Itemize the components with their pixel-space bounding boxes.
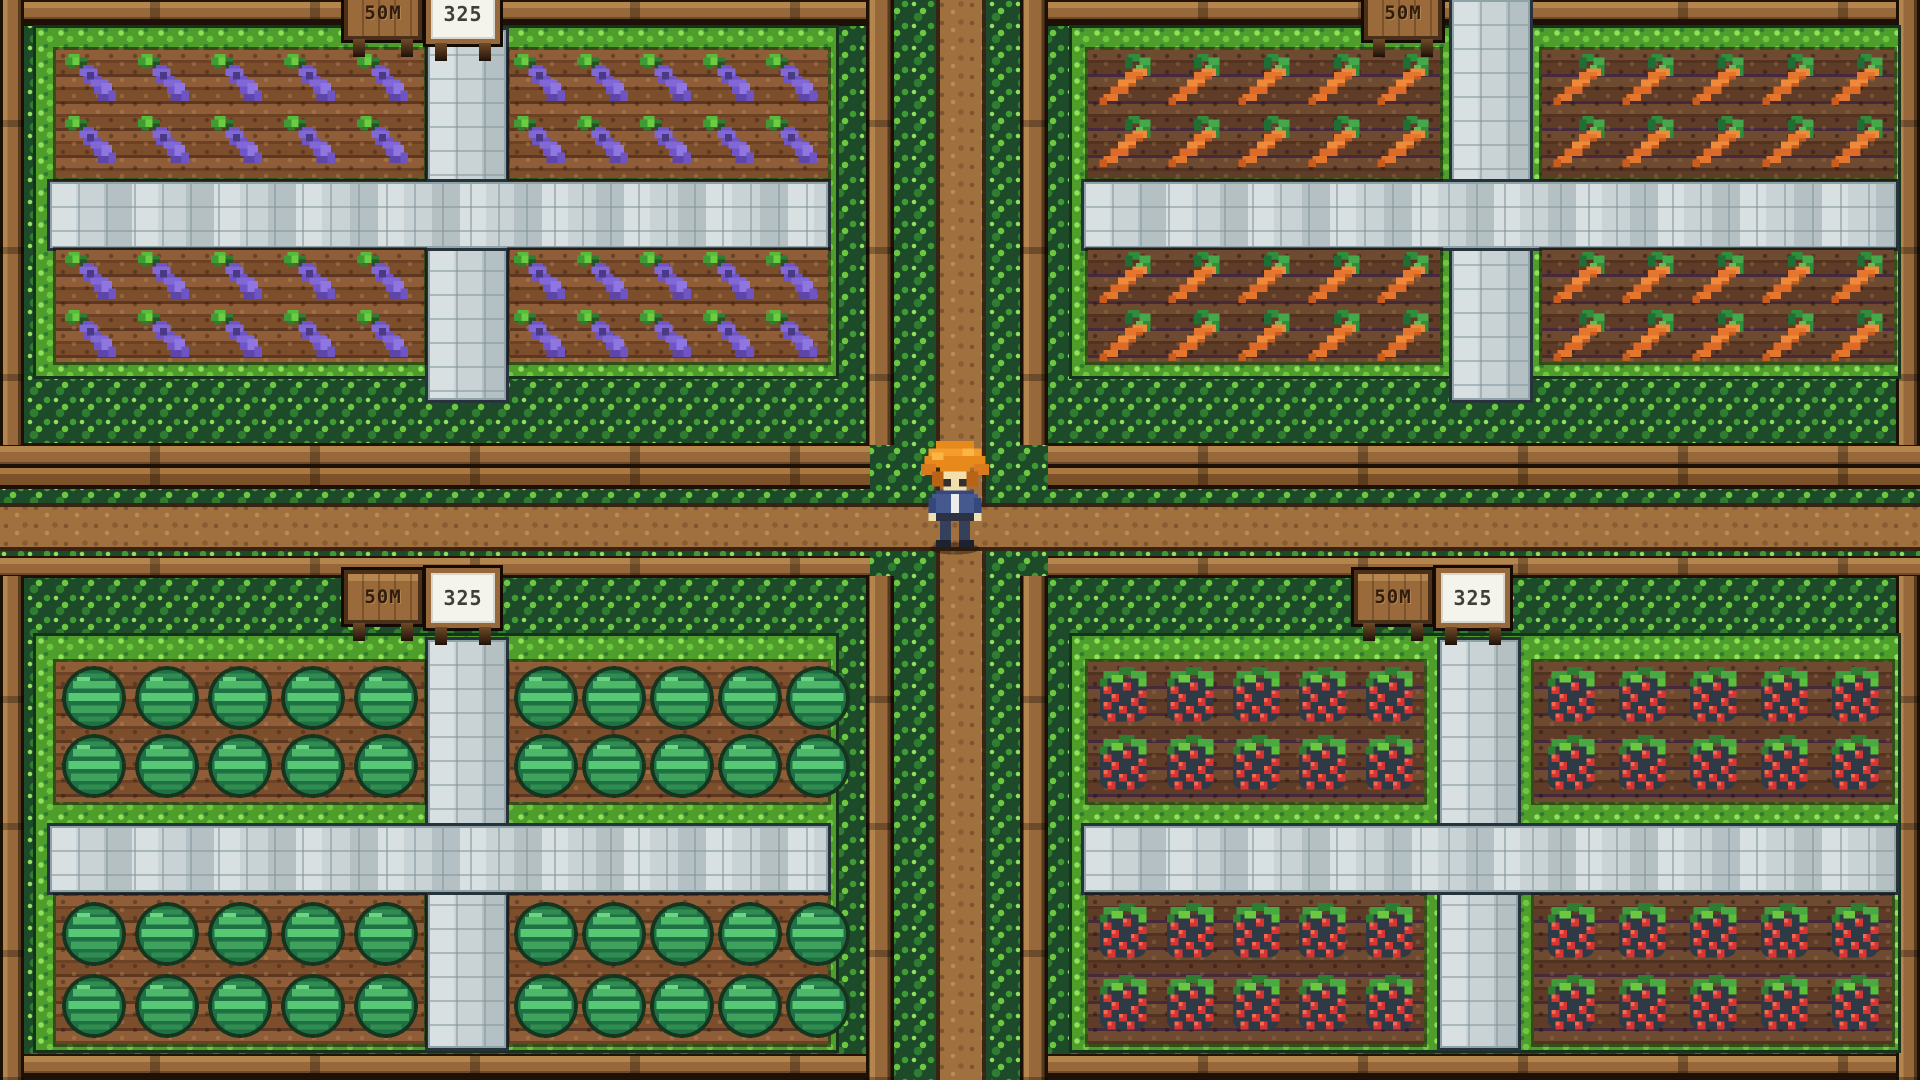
crop-eggplant[interactable] <box>514 310 572 368</box>
crop-carrot[interactable] <box>1550 116 1608 174</box>
crop-grid <box>1536 898 1890 1042</box>
crop-carrot[interactable] <box>1759 310 1817 368</box>
crop-strawberry[interactable] <box>1682 667 1744 729</box>
soil-plot-eggplant <box>510 50 828 178</box>
crop-strawberry[interactable] <box>1092 667 1154 729</box>
crop-strawberry[interactable] <box>1291 735 1353 797</box>
sign-label: 50M <box>1364 0 1442 40</box>
crop-eggplant[interactable] <box>514 116 572 174</box>
crop-strawberry[interactable] <box>1540 975 1602 1037</box>
crop-carrot[interactable] <box>1828 116 1886 174</box>
crop-watermelon[interactable] <box>716 664 784 732</box>
crop-watermelon[interactable] <box>580 664 648 732</box>
crop-price-sign: 325 <box>426 0 500 44</box>
crop-eggplant[interactable] <box>357 54 415 112</box>
crop-eggplant[interactable] <box>284 310 342 368</box>
crop-carrot[interactable] <box>1096 310 1154 368</box>
farm-quadrant-top-left: 50M325 <box>0 0 870 443</box>
crop-eggplant[interactable] <box>640 54 698 112</box>
crop-watermelon[interactable] <box>279 732 347 800</box>
crop-eggplant[interactable] <box>703 116 761 174</box>
crop-watermelon[interactable] <box>206 900 274 968</box>
crop-watermelon[interactable] <box>580 972 648 1040</box>
crop-eggplant[interactable] <box>211 116 269 174</box>
crop-grid <box>512 52 826 176</box>
crop-strawberry[interactable] <box>1753 735 1815 797</box>
crop-watermelon[interactable] <box>716 900 784 968</box>
farmer-sprite <box>917 434 993 562</box>
crop-carrot[interactable] <box>1828 252 1886 310</box>
crop-carrot[interactable] <box>1096 54 1154 112</box>
crop-eggplant[interactable] <box>65 252 123 310</box>
crop-strawberry[interactable] <box>1682 735 1744 797</box>
crop-strawberry[interactable] <box>1824 975 1886 1037</box>
crop-strawberry[interactable] <box>1824 903 1886 965</box>
crop-carrot[interactable] <box>1689 310 1747 368</box>
crop-carrot[interactable] <box>1305 252 1363 310</box>
stone-path-horizontal <box>1084 826 1896 892</box>
sign-leg <box>401 623 413 641</box>
crop-grid <box>1544 252 1892 360</box>
sign-leg <box>479 43 491 61</box>
crop-carrot[interactable] <box>1828 310 1886 368</box>
fence-post <box>1020 0 1048 445</box>
crop-eggplant[interactable] <box>703 252 761 310</box>
crop-eggplant[interactable] <box>284 252 342 310</box>
crop-eggplant[interactable] <box>640 252 698 310</box>
crop-timer-sign: 50M <box>1354 570 1432 624</box>
crop-carrot[interactable] <box>1235 252 1293 310</box>
sign-label: 325 <box>426 568 500 628</box>
player-character[interactable] <box>917 434 993 562</box>
crop-carrot[interactable] <box>1689 252 1747 310</box>
crop-strawberry[interactable] <box>1753 975 1815 1037</box>
crop-strawberry[interactable] <box>1358 667 1420 729</box>
crop-eggplant[interactable] <box>703 54 761 112</box>
crop-price-sign: 325 <box>1436 568 1510 628</box>
crop-eggplant[interactable] <box>284 116 342 174</box>
sign-leg <box>479 627 491 645</box>
sign-leg <box>1373 39 1385 57</box>
crop-strawberry[interactable] <box>1092 735 1154 797</box>
crop-watermelon[interactable] <box>352 732 420 800</box>
crop-eggplant[interactable] <box>211 54 269 112</box>
soil-plot-watermelon <box>56 662 424 802</box>
crop-strawberry[interactable] <box>1824 735 1886 797</box>
crop-strawberry[interactable] <box>1358 735 1420 797</box>
crop-watermelon[interactable] <box>133 732 201 800</box>
crop-strawberry[interactable] <box>1159 735 1221 797</box>
crop-watermelon[interactable] <box>648 732 716 800</box>
sign-leg <box>1489 627 1501 645</box>
crop-grid <box>1090 252 1438 360</box>
crop-strawberry[interactable] <box>1159 975 1221 1037</box>
crop-carrot[interactable] <box>1305 310 1363 368</box>
crop-watermelon[interactable] <box>133 900 201 968</box>
crop-watermelon[interactable] <box>279 664 347 732</box>
crop-strawberry[interactable] <box>1753 667 1815 729</box>
crop-watermelon[interactable] <box>60 732 128 800</box>
crop-strawberry[interactable] <box>1611 667 1673 729</box>
soil-plot-carrot <box>1542 50 1894 178</box>
crop-carrot[interactable] <box>1550 252 1608 310</box>
farm-quadrant-top-right: 50M <box>1048 0 1920 443</box>
crop-carrot[interactable] <box>1165 310 1223 368</box>
crop-eggplant[interactable] <box>357 116 415 174</box>
crop-eggplant[interactable] <box>211 252 269 310</box>
crop-watermelon[interactable] <box>580 732 648 800</box>
crop-eggplant[interactable] <box>211 310 269 368</box>
crop-watermelon[interactable] <box>352 664 420 732</box>
crop-watermelon[interactable] <box>648 900 716 968</box>
soil-plot-watermelon <box>510 896 828 1044</box>
crop-eggplant[interactable] <box>766 116 824 174</box>
crop-eggplant[interactable] <box>577 252 635 310</box>
crop-strawberry[interactable] <box>1358 975 1420 1037</box>
crop-grid <box>1536 664 1890 800</box>
crop-grid <box>58 664 422 800</box>
crop-strawberry[interactable] <box>1682 903 1744 965</box>
crop-eggplant[interactable] <box>577 116 635 174</box>
soil-plot-watermelon <box>510 662 828 802</box>
crop-watermelon[interactable] <box>784 972 852 1040</box>
crop-watermelon[interactable] <box>60 900 128 968</box>
sign-label: 50M <box>1354 570 1432 624</box>
fence-post <box>866 0 894 445</box>
crop-timer-sign: 50M <box>1364 0 1442 40</box>
crop-carrot[interactable] <box>1374 54 1432 112</box>
sign-leg <box>435 43 447 61</box>
crop-price-sign: 325 <box>426 568 500 628</box>
crop-grid <box>512 664 826 800</box>
crop-watermelon[interactable] <box>352 900 420 968</box>
crop-strawberry[interactable] <box>1540 667 1602 729</box>
crop-eggplant[interactable] <box>514 54 572 112</box>
farm-quadrant-bottom-left: 50M325 <box>0 578 870 1080</box>
soil-plot-carrot <box>1088 50 1440 178</box>
sign-leg <box>401 39 413 57</box>
crop-strawberry[interactable] <box>1540 735 1602 797</box>
fence-post <box>1020 576 1048 1080</box>
crop-carrot[interactable] <box>1689 116 1747 174</box>
crop-carrot[interactable] <box>1374 252 1432 310</box>
crop-watermelon[interactable] <box>133 664 201 732</box>
sign-label: 325 <box>1436 568 1510 628</box>
crop-watermelon[interactable] <box>716 732 784 800</box>
crop-timer-sign: 50M <box>344 0 422 40</box>
crop-grid <box>58 252 422 360</box>
crop-carrot[interactable] <box>1759 252 1817 310</box>
crop-watermelon[interactable] <box>784 732 852 800</box>
crop-carrot[interactable] <box>1374 116 1432 174</box>
crop-eggplant[interactable] <box>514 252 572 310</box>
crop-watermelon[interactable] <box>716 972 784 1040</box>
crop-eggplant[interactable] <box>640 310 698 368</box>
crop-eggplant[interactable] <box>640 116 698 174</box>
crop-grid <box>1090 664 1422 800</box>
crop-eggplant[interactable] <box>577 54 635 112</box>
sign-leg <box>1421 39 1433 57</box>
soil-plot-strawberry <box>1088 896 1424 1044</box>
crop-strawberry[interactable] <box>1225 975 1287 1037</box>
stone-path-horizontal <box>50 826 828 892</box>
crop-carrot[interactable] <box>1305 116 1363 174</box>
crop-carrot[interactable] <box>1550 54 1608 112</box>
crop-carrot[interactable] <box>1374 310 1432 368</box>
crop-strawberry[interactable] <box>1611 975 1673 1037</box>
sign-leg <box>1411 623 1423 641</box>
crop-strawberry[interactable] <box>1611 735 1673 797</box>
crop-eggplant[interactable] <box>138 252 196 310</box>
soil-plot-carrot <box>1542 250 1894 362</box>
crop-carrot[interactable] <box>1828 54 1886 112</box>
soil-plot-eggplant <box>56 250 424 362</box>
sign-leg <box>353 39 365 57</box>
crop-watermelon[interactable] <box>279 900 347 968</box>
crop-watermelon[interactable] <box>784 900 852 968</box>
crop-watermelon[interactable] <box>206 732 274 800</box>
crop-grid <box>1090 52 1438 176</box>
crop-eggplant[interactable] <box>65 310 123 368</box>
crop-eggplant[interactable] <box>65 116 123 174</box>
soil-plot-strawberry <box>1534 662 1892 802</box>
crop-strawberry[interactable] <box>1540 903 1602 965</box>
crop-eggplant[interactable] <box>138 310 196 368</box>
crop-grid <box>512 898 826 1042</box>
sign-leg <box>1363 623 1375 641</box>
crop-watermelon[interactable] <box>133 972 201 1040</box>
crop-watermelon[interactable] <box>648 664 716 732</box>
sign-leg <box>353 623 365 641</box>
crop-eggplant[interactable] <box>577 310 635 368</box>
crop-carrot[interactable] <box>1619 116 1677 174</box>
crop-strawberry[interactable] <box>1291 975 1353 1037</box>
crop-strawberry[interactable] <box>1159 667 1221 729</box>
crop-watermelon[interactable] <box>352 972 420 1040</box>
soil-plot-watermelon <box>56 896 424 1044</box>
crop-carrot[interactable] <box>1305 54 1363 112</box>
crop-carrot[interactable] <box>1165 116 1223 174</box>
crop-watermelon[interactable] <box>206 664 274 732</box>
crop-eggplant[interactable] <box>766 252 824 310</box>
soil-plot-strawberry <box>1534 896 1892 1044</box>
crop-eggplant[interactable] <box>284 54 342 112</box>
crop-watermelon[interactable] <box>279 972 347 1040</box>
crop-strawberry[interactable] <box>1291 667 1353 729</box>
sign-label: 50M <box>344 570 422 624</box>
fence-rail-mid-left <box>0 443 870 489</box>
crop-carrot[interactable] <box>1235 54 1293 112</box>
crop-strawberry[interactable] <box>1611 903 1673 965</box>
crop-carrot[interactable] <box>1759 116 1817 174</box>
crop-carrot[interactable] <box>1619 54 1677 112</box>
crop-carrot[interactable] <box>1619 252 1677 310</box>
crop-strawberry[interactable] <box>1358 903 1420 965</box>
crop-watermelon[interactable] <box>784 664 852 732</box>
crop-strawberry[interactable] <box>1291 903 1353 965</box>
crop-grid <box>58 52 422 176</box>
crop-strawberry[interactable] <box>1824 667 1886 729</box>
crop-strawberry[interactable] <box>1159 903 1221 965</box>
soil-plot-eggplant <box>510 250 828 362</box>
crop-carrot[interactable] <box>1550 310 1608 368</box>
sign-leg <box>435 627 447 645</box>
fence-post <box>866 576 894 1080</box>
crop-grid <box>1090 898 1422 1042</box>
crop-strawberry[interactable] <box>1092 903 1154 965</box>
crop-eggplant[interactable] <box>138 54 196 112</box>
crop-carrot[interactable] <box>1096 116 1154 174</box>
crop-eggplant[interactable] <box>138 116 196 174</box>
soil-plot-eggplant <box>56 50 424 178</box>
crop-grid <box>58 898 422 1042</box>
crop-watermelon[interactable] <box>512 972 580 1040</box>
crop-strawberry[interactable] <box>1753 903 1815 965</box>
crop-eggplant[interactable] <box>703 310 761 368</box>
farm-quadrant-bottom-right: 50M325 <box>1048 578 1920 1080</box>
crop-watermelon[interactable] <box>512 732 580 800</box>
crop-strawberry[interactable] <box>1225 903 1287 965</box>
crop-carrot[interactable] <box>1096 252 1154 310</box>
crop-watermelon[interactable] <box>60 664 128 732</box>
soil-plot-strawberry <box>1088 662 1424 802</box>
crop-eggplant[interactable] <box>65 54 123 112</box>
soil-plot-carrot <box>1088 250 1440 362</box>
crop-strawberry[interactable] <box>1682 975 1744 1037</box>
crop-carrot[interactable] <box>1759 54 1817 112</box>
crop-watermelon[interactable] <box>648 972 716 1040</box>
crop-carrot[interactable] <box>1689 54 1747 112</box>
crop-eggplant[interactable] <box>766 310 824 368</box>
crop-carrot[interactable] <box>1165 252 1223 310</box>
crop-grid <box>1544 52 1892 176</box>
crop-watermelon[interactable] <box>512 900 580 968</box>
crop-eggplant[interactable] <box>357 252 415 310</box>
crop-timer-sign: 50M <box>344 570 422 624</box>
crop-watermelon[interactable] <box>206 972 274 1040</box>
crop-carrot[interactable] <box>1235 116 1293 174</box>
crop-eggplant[interactable] <box>766 54 824 112</box>
crop-watermelon[interactable] <box>512 664 580 732</box>
game-viewport: 50M32550M50M32550M325 <box>0 0 1920 1080</box>
crop-eggplant[interactable] <box>357 310 415 368</box>
sign-label: 50M <box>344 0 422 40</box>
sign-leg <box>1445 627 1457 645</box>
crop-watermelon[interactable] <box>580 900 648 968</box>
crop-strawberry[interactable] <box>1225 667 1287 729</box>
crop-strawberry[interactable] <box>1225 735 1287 797</box>
crop-watermelon[interactable] <box>60 972 128 1040</box>
fence-rail-mid-right <box>1048 443 1920 489</box>
crop-carrot[interactable] <box>1619 310 1677 368</box>
crop-carrot[interactable] <box>1165 54 1223 112</box>
crop-carrot[interactable] <box>1235 310 1293 368</box>
crop-strawberry[interactable] <box>1092 975 1154 1037</box>
stone-path-horizontal <box>50 182 828 248</box>
crop-grid <box>512 252 826 360</box>
stone-path-horizontal <box>1084 182 1896 248</box>
sign-label: 325 <box>426 0 500 44</box>
